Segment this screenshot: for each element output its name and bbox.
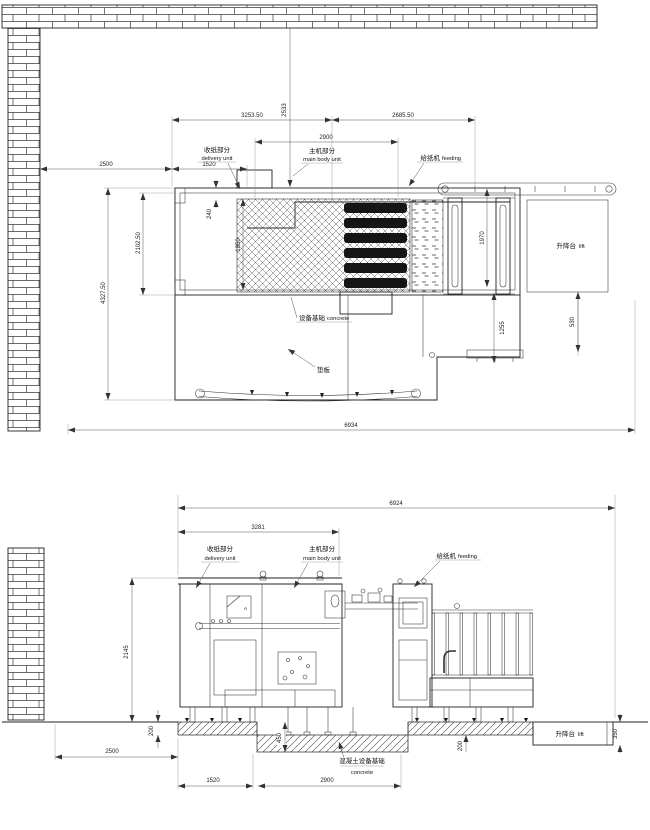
side-machine-body: A bbox=[178, 571, 418, 707]
side-feeder-box bbox=[393, 579, 432, 707]
plan-view: 2533 bbox=[40, 28, 635, 434]
dim-delivery: 1520 bbox=[202, 162, 216, 168]
plan-lift-label-en: lift bbox=[579, 244, 585, 250]
side-lift-label-en: lift bbox=[578, 732, 584, 738]
top-brick-wall bbox=[2, 5, 597, 28]
dim-side-pit-depth: 450 bbox=[277, 732, 283, 743]
dim-conveyor: 1850 bbox=[236, 238, 242, 252]
plan-lift-platform: 升降台 lift bbox=[527, 200, 608, 292]
dim-feeder: 1970 bbox=[480, 231, 486, 245]
plan-mainbody-label-cn: 主机部分 bbox=[309, 146, 336, 155]
plan-feeding-label-cn: 给纸机 bbox=[421, 153, 441, 162]
dim-inner-depth: 2102.50 bbox=[136, 232, 142, 254]
plan-delivery-label-cn: 收纸部分 bbox=[204, 145, 231, 154]
dim-step-right: 530 bbox=[570, 316, 576, 327]
plan-delivery-label-en: delivery unit bbox=[202, 156, 233, 162]
plan-foundation-label-cn: 设备基础 bbox=[299, 313, 326, 322]
side-panel-marker: A bbox=[244, 606, 247, 611]
elevation-view: 升降台 lift A bbox=[2, 495, 648, 789]
dim-side-slab: 200 bbox=[149, 725, 155, 736]
side-railing bbox=[430, 604, 533, 708]
side-lift-label-cn: 升降台 bbox=[556, 729, 576, 738]
dim-side-slab-right: 200 bbox=[458, 740, 464, 751]
left-brick-wall bbox=[8, 28, 40, 431]
plan-lift-label-cn: 升降台 bbox=[557, 241, 577, 250]
side-concrete-label-en: concrete bbox=[351, 770, 373, 776]
side-mainbody-label-en: main body unit bbox=[303, 556, 341, 562]
dim-side-total: 6924 bbox=[389, 501, 403, 507]
drawing-canvas: 2533 bbox=[0, 0, 650, 830]
side-delivery-label-en: delivery unit bbox=[205, 556, 236, 562]
plan-lower-body bbox=[175, 292, 523, 400]
dim-total-length: 6934 bbox=[344, 423, 358, 429]
dim-side-height: 2145 bbox=[124, 645, 130, 659]
dim-wall-top: 2533 bbox=[282, 103, 288, 117]
dim-width-right: 2685.50 bbox=[392, 113, 414, 119]
dim-side-body: 3281 bbox=[251, 525, 265, 531]
plan-feeding-label-en: feeding bbox=[442, 156, 461, 162]
plan-feeder-rails bbox=[443, 198, 515, 294]
dim-side-pit-a: 1520 bbox=[206, 778, 220, 784]
side-feeding-label-en: feeding bbox=[458, 554, 477, 560]
side-delivery-label-cn: 收纸部分 bbox=[207, 544, 234, 553]
plan-foundation-label-en: concrete bbox=[327, 316, 349, 322]
dim-side-wall: 2500 bbox=[105, 749, 119, 755]
plan-bumper-bar bbox=[196, 389, 421, 401]
dim-side-lift-depth: 350 bbox=[613, 728, 619, 739]
plan-pad-label: 垫板 bbox=[317, 365, 331, 374]
side-feeding-label-cn: 给纸机 bbox=[437, 551, 457, 560]
plan-mainbody-label-en: main body unit bbox=[303, 157, 341, 163]
dim-main-body: 2900 bbox=[319, 135, 333, 141]
dim-side-pit-b: 2900 bbox=[320, 778, 334, 784]
dim-width-left: 3253.50 bbox=[241, 113, 263, 119]
side-brick-wall bbox=[8, 548, 44, 720]
dim-total-depth: 4327.50 bbox=[101, 282, 107, 304]
side-mainbody-label-cn: 主机部分 bbox=[309, 544, 336, 553]
dim-offset: 240 bbox=[207, 208, 213, 219]
side-concrete-label-cn: 混凝土设备基础 bbox=[339, 756, 385, 765]
dim-wall-left: 2500 bbox=[99, 162, 113, 168]
dim-step-inner: 1255 bbox=[500, 321, 506, 335]
plan-feeder-table bbox=[412, 200, 443, 292]
cad-layout-drawing: 2533 bbox=[0, 0, 650, 830]
